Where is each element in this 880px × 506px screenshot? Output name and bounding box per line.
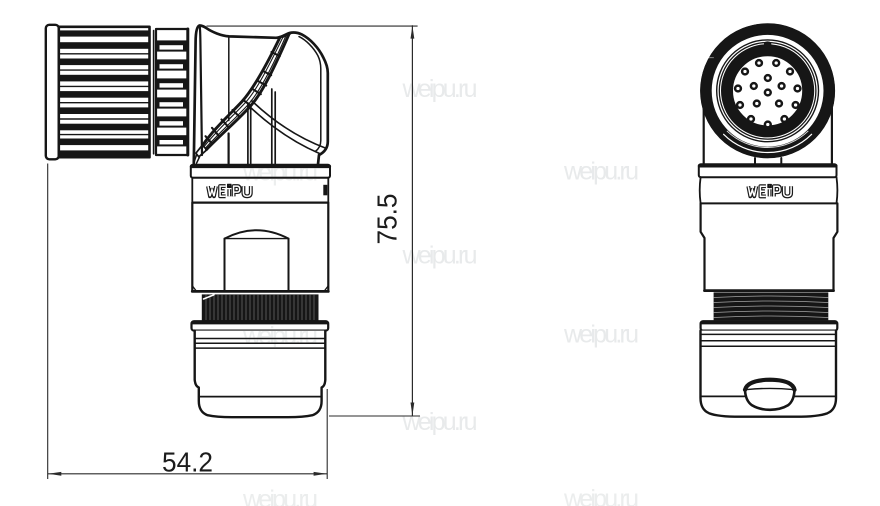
svg-text:weipu.ru: weipu.ru bbox=[402, 408, 478, 436]
svg-text:weipu.ru: weipu.ru bbox=[242, 486, 318, 506]
svg-text:weipu.ru: weipu.ru bbox=[563, 158, 639, 186]
svg-text:weipu.ru: weipu.ru bbox=[242, 159, 318, 187]
svg-text:weipu.ru: weipu.ru bbox=[402, 75, 478, 103]
svg-text:54.2: 54.2 bbox=[162, 447, 213, 478]
svg-text:weipu.ru: weipu.ru bbox=[563, 321, 639, 349]
svg-text:75.5: 75.5 bbox=[372, 194, 403, 245]
svg-text:weipu.ru: weipu.ru bbox=[242, 322, 318, 350]
svg-text:weipu.ru: weipu.ru bbox=[402, 242, 478, 270]
svg-text:weipu.ru: weipu.ru bbox=[563, 485, 639, 506]
